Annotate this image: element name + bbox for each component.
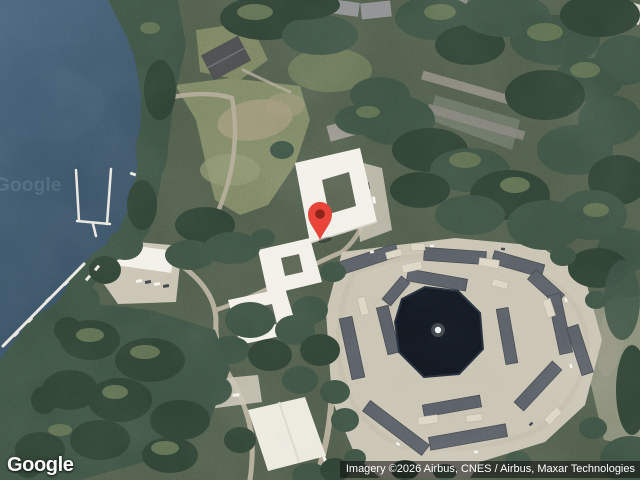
satellite-map-viewport[interactable]: Google Google Imagery ©2026 Airbus, CNES… xyxy=(0,0,640,480)
attribution-text: Imagery ©2026 Airbus, CNES / Airbus, Max… xyxy=(346,463,635,475)
google-logo[interactable]: Google xyxy=(7,454,74,477)
pin-inner-dot xyxy=(315,209,325,219)
google-watermark: Google xyxy=(0,175,62,197)
satellite-imagery xyxy=(0,0,640,480)
map-attribution: Imagery ©2026 Airbus, CNES / Airbus, Max… xyxy=(340,461,640,478)
